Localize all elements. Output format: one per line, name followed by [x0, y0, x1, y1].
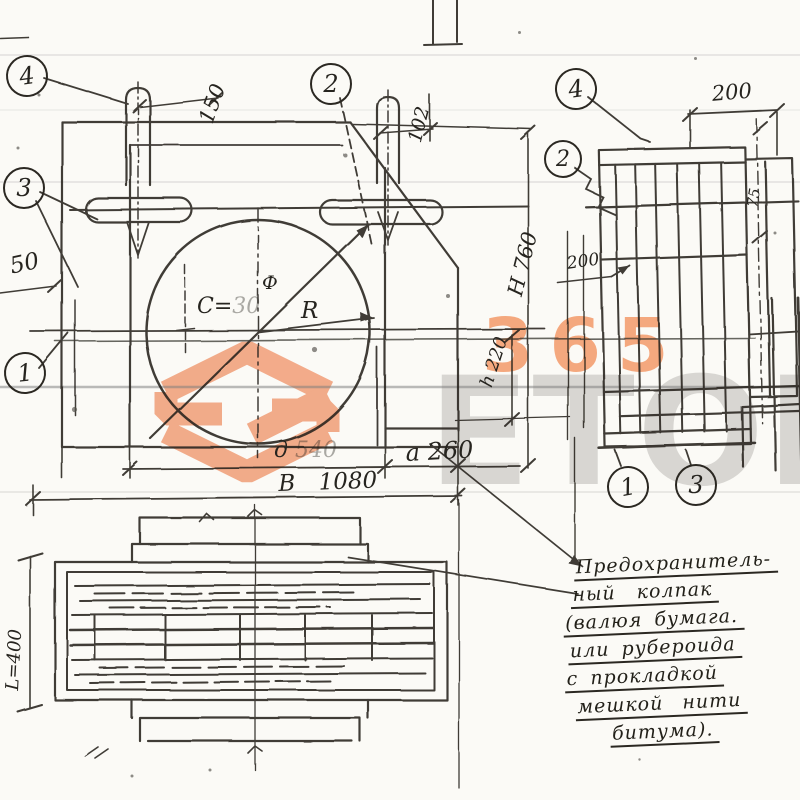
edge-artifacts: [0, 0, 462, 45]
note-line: Предохранитель-: [573, 550, 777, 582]
callout-leaders: [36, 78, 691, 466]
dim-B-1080: B 1080: [278, 470, 377, 496]
dim-540: д 540: [274, 440, 337, 462]
note-line: ный колпак: [570, 580, 719, 609]
callout-2-top: 2: [310, 63, 352, 105]
dim-200-top: 200: [711, 81, 753, 105]
bottom-view-lines: [55, 500, 459, 788]
front-view-lines: [30, 82, 755, 458]
dim-200-left: 200: [566, 251, 601, 272]
radius-label: R: [301, 300, 318, 323]
side-view-lines: [584, 118, 800, 476]
callout-3-bottom: 3: [675, 464, 717, 506]
circle-center-label: C=30: [197, 296, 260, 318]
note-line: мешкой нити: [575, 691, 748, 721]
dim-a-260: a 260: [405, 437, 474, 465]
dim-L-400: L=400: [4, 629, 25, 691]
callout-2-right: 2: [544, 140, 582, 178]
note-line: битума).: [610, 720, 720, 748]
callout-3-left: 3: [3, 167, 45, 209]
dim-50: 50: [8, 250, 41, 279]
phi-label: Ф: [262, 274, 278, 293]
dim-75-right: 75: [745, 187, 763, 208]
note-line: с прокладкой: [564, 663, 724, 693]
scanned-technical-drawing: 365 ETON: [0, 0, 800, 800]
handwritten-note: Предохранитель- ный колпак (валюя бумага…: [557, 551, 800, 753]
